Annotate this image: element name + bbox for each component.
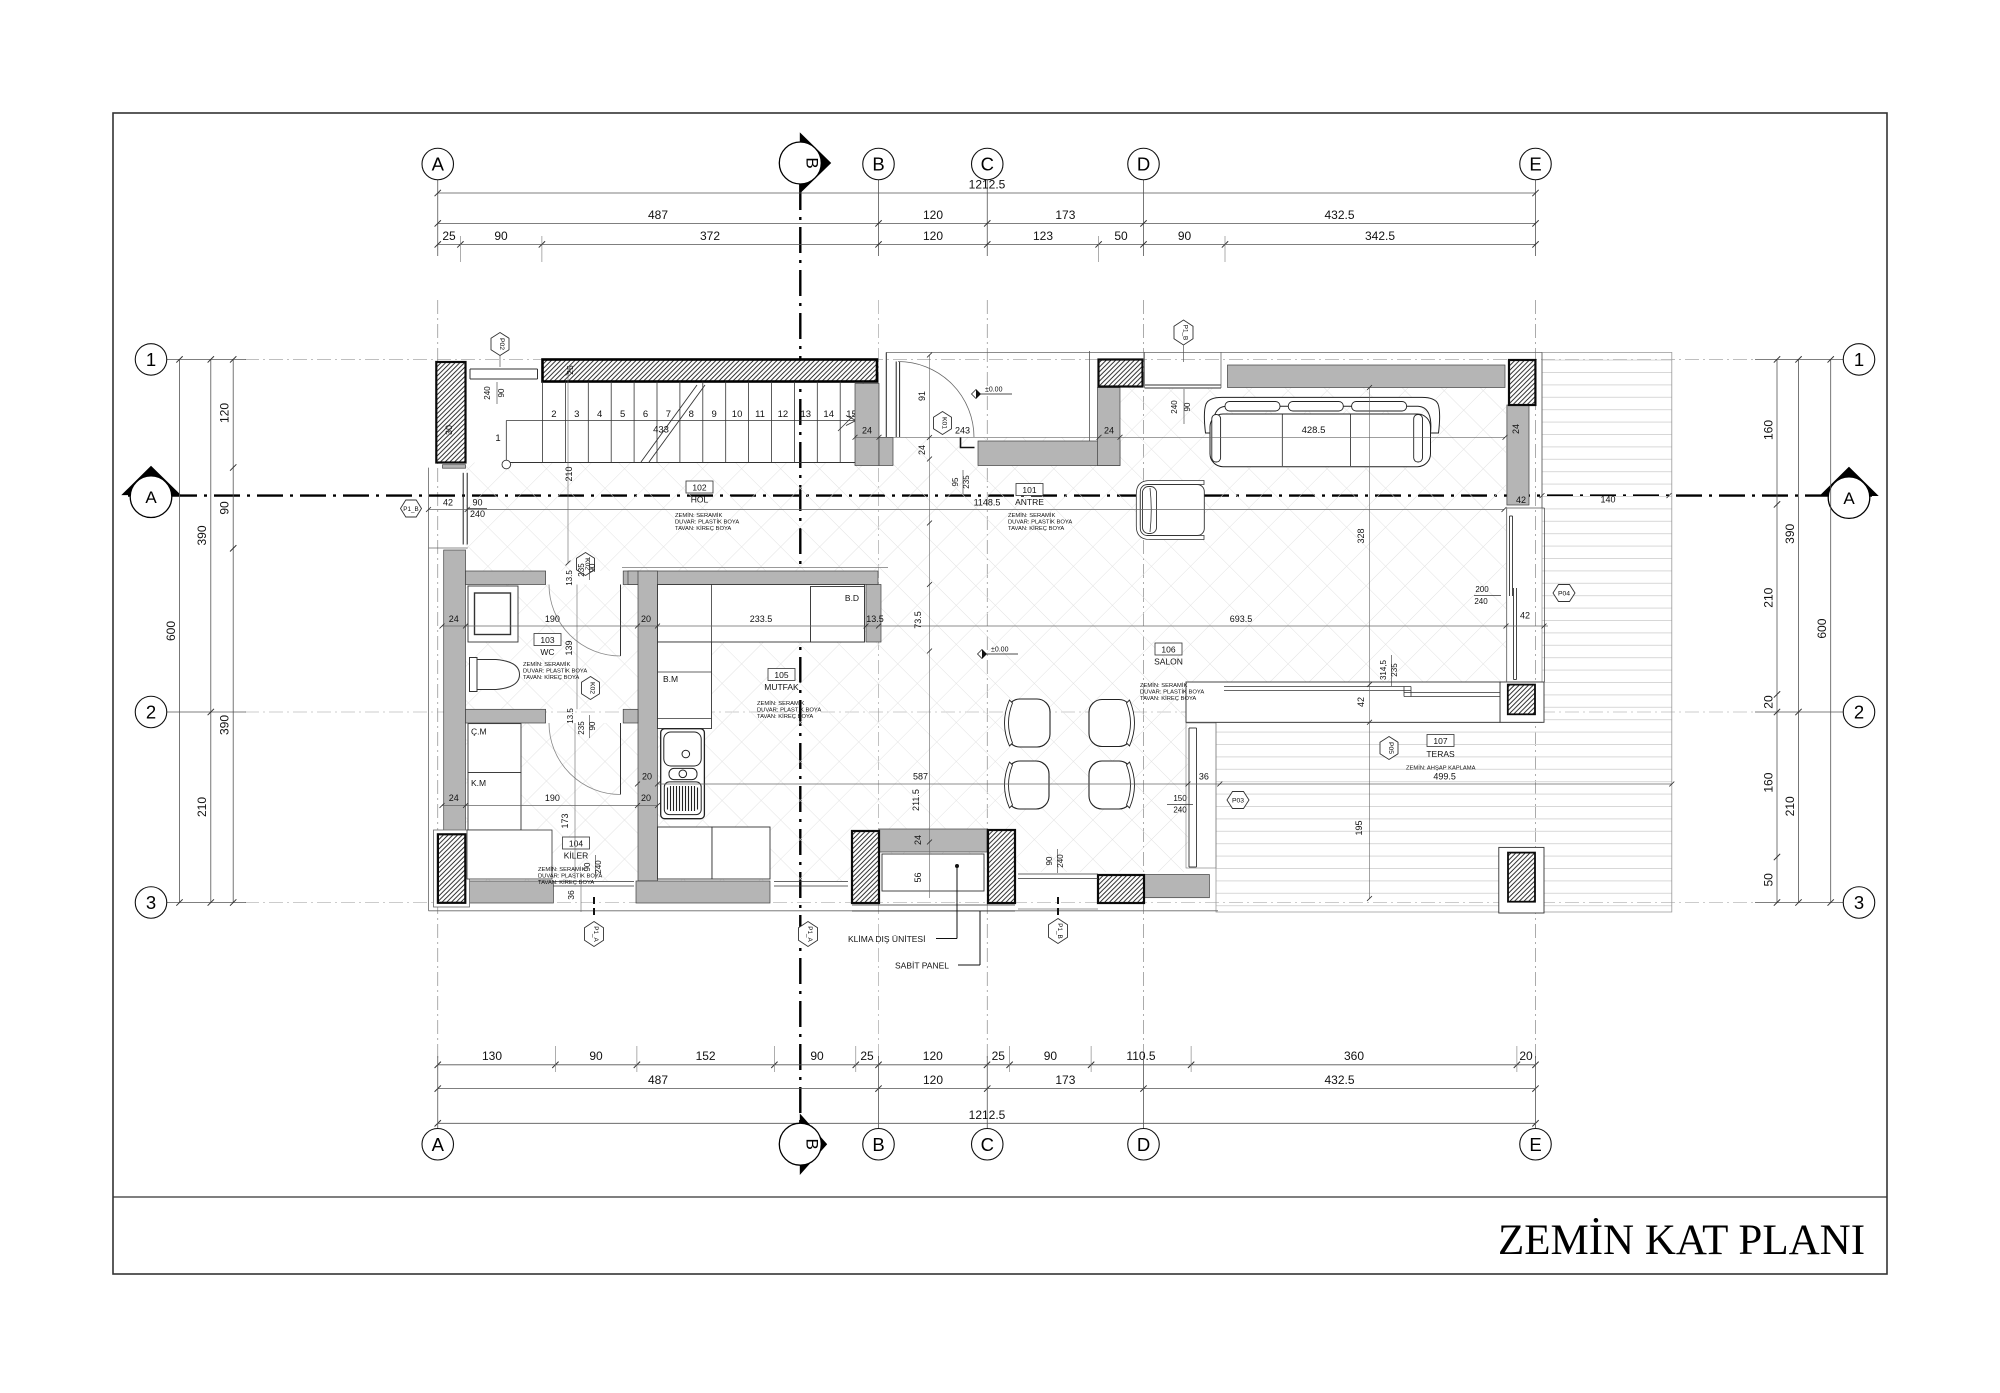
svg-text:30: 30 [444,425,454,435]
svg-text:B: B [802,157,821,168]
svg-text:8: 8 [689,409,694,420]
svg-text:328: 328 [1356,528,1366,543]
svg-text:13.5: 13.5 [866,614,884,624]
svg-text:390: 390 [218,715,232,735]
svg-text:210: 210 [1762,587,1776,607]
svg-text:DUVAR: PLASTİK BOYA: DUVAR: PLASTİK BOYA [757,706,821,713]
svg-text:20: 20 [641,614,651,624]
svg-text:693.5: 693.5 [1230,614,1253,624]
svg-text:240: 240 [1173,806,1187,815]
svg-text:105: 105 [774,670,788,680]
svg-text:342.5: 342.5 [1365,229,1395,243]
svg-text:90: 90 [583,862,592,871]
svg-text:E: E [1529,1134,1541,1155]
svg-text:160: 160 [1762,772,1776,792]
svg-text:13.5: 13.5 [565,570,574,586]
svg-text:1148.5: 1148.5 [974,498,1001,508]
svg-text:123: 123 [1033,229,1053,243]
svg-text:103: 103 [540,635,554,645]
svg-text:240: 240 [1170,400,1179,414]
svg-text:1: 1 [495,433,500,444]
svg-text:SALON: SALON [1154,657,1183,667]
svg-text:200: 200 [1475,585,1489,594]
svg-text:10: 10 [732,409,743,420]
svg-text:P1_B: P1_B [1182,325,1189,340]
svg-text:90: 90 [494,229,508,243]
svg-text:600: 600 [164,621,178,641]
svg-text:36: 36 [566,890,576,900]
svg-text:11: 11 [755,409,765,420]
svg-text:3: 3 [574,409,579,420]
svg-text:20: 20 [642,772,652,782]
svg-text:173: 173 [560,813,570,828]
svg-text:7: 7 [666,409,671,420]
svg-text:HOL: HOL [691,495,709,505]
svg-text:ZEMİN: SERAMİK: ZEMİN: SERAMİK [675,512,722,519]
svg-text:3: 3 [1854,892,1864,913]
svg-text:433: 433 [653,425,669,436]
svg-text:95: 95 [951,477,960,486]
svg-text:A: A [1843,489,1855,508]
svg-text:ZEMİN KAT PLANI: ZEMİN KAT PLANI [1498,1217,1865,1264]
svg-text:90: 90 [1045,856,1054,865]
svg-text:390: 390 [195,525,209,545]
svg-text:90: 90 [1183,402,1192,411]
svg-text:25: 25 [565,365,575,375]
svg-text:P1_B: P1_B [403,506,418,513]
svg-text:B.D: B.D [845,593,859,603]
svg-text:TAVAN: KİREÇ BOYA: TAVAN: KİREÇ BOYA [1140,695,1196,702]
svg-text:P1_A: P1_A [592,926,599,942]
svg-text:25: 25 [860,1049,874,1063]
svg-text:DUVAR: PLASTİK BOYA: DUVAR: PLASTİK BOYA [1008,518,1072,525]
svg-text:91: 91 [917,391,927,401]
svg-text:5: 5 [620,409,625,420]
svg-text:139: 139 [564,640,574,655]
svg-text:235: 235 [577,563,586,577]
svg-text:ANTRE: ANTRE [1015,497,1044,507]
svg-text:±0.00: ±0.00 [985,387,1003,394]
svg-text:C: C [981,1134,994,1155]
svg-text:42: 42 [443,498,453,508]
svg-text:B: B [872,154,884,175]
svg-text:499.5: 499.5 [1433,772,1456,782]
svg-text:P1_B: P1_B [1056,923,1063,938]
svg-text:42: 42 [1520,610,1530,620]
svg-text:173: 173 [1055,208,1075,222]
svg-text:D: D [1137,154,1150,175]
svg-text:24: 24 [913,835,923,845]
svg-text:42: 42 [1516,495,1526,505]
svg-text:90: 90 [589,1049,603,1063]
svg-text:1: 1 [146,349,156,370]
svg-text:ZEMİN: SERAMİK: ZEMİN: SERAMİK [538,866,585,873]
svg-text:210: 210 [1783,796,1797,816]
svg-text:130: 130 [482,1049,502,1063]
svg-text:73.5: 73.5 [913,611,923,629]
svg-text:102: 102 [692,483,706,493]
svg-text:120: 120 [923,1049,943,1063]
svg-text:20: 20 [1519,1049,1533,1063]
svg-text:372: 372 [700,229,720,243]
svg-text:K02: K02 [589,682,596,694]
svg-text:432.5: 432.5 [1324,208,1354,222]
svg-text:SABİT PANEL: SABİT PANEL [895,961,949,971]
svg-text:25: 25 [442,229,456,243]
svg-text:24: 24 [1104,426,1114,436]
svg-text:6: 6 [643,409,648,420]
svg-text:2: 2 [146,702,156,723]
svg-text:TAVAN: KİREÇ BOYA: TAVAN: KİREÇ BOYA [757,713,813,720]
svg-text:MUTFAK: MUTFAK [764,682,799,692]
svg-text:13.5: 13.5 [566,708,575,724]
svg-text:TAVAN: KİREÇ BOYA: TAVAN: KİREÇ BOYA [523,674,579,681]
svg-text:24: 24 [917,445,927,455]
svg-text:487: 487 [648,1073,668,1087]
svg-text:E: E [1529,154,1541,175]
svg-text:152: 152 [696,1049,716,1063]
svg-text:360: 360 [1344,1049,1364,1063]
svg-text:240: 240 [1474,597,1488,606]
svg-text:90: 90 [1044,1049,1058,1063]
svg-text:120: 120 [218,403,232,423]
svg-text:2: 2 [551,409,556,420]
svg-text:20: 20 [641,793,651,803]
svg-text:3: 3 [146,892,156,913]
svg-text:56: 56 [913,872,923,882]
svg-text:KİLER: KİLER [564,851,589,861]
svg-text:13: 13 [801,409,812,420]
svg-text:90: 90 [218,501,232,515]
svg-text:DUVAR: PLASTİK BOYA: DUVAR: PLASTİK BOYA [538,872,602,879]
svg-text:20: 20 [1762,695,1776,709]
svg-text:235: 235 [577,721,586,735]
svg-text:235: 235 [962,475,971,489]
svg-text:B: B [802,1139,821,1150]
svg-text:ZEMİN: SERAMİK: ZEMİN: SERAMİK [1140,682,1187,689]
svg-text:190: 190 [545,614,560,624]
svg-text:36: 36 [1199,772,1209,782]
svg-text:42: 42 [1356,697,1366,707]
svg-text:90: 90 [472,498,482,508]
svg-text:120: 120 [923,208,943,222]
svg-text:DUVAR: PLASTİK BOYA: DUVAR: PLASTİK BOYA [1140,688,1204,695]
svg-text:240: 240 [483,386,492,400]
svg-text:150: 150 [1173,794,1187,803]
svg-text:4: 4 [597,409,602,420]
svg-text:1: 1 [1854,349,1864,370]
svg-text:107: 107 [1433,736,1447,746]
svg-text:110.5: 110.5 [1126,1049,1155,1063]
svg-text:210: 210 [195,797,209,817]
svg-text:24: 24 [449,793,459,803]
svg-text:587: 587 [913,772,928,782]
svg-text:240: 240 [470,509,485,519]
svg-text:90: 90 [810,1049,824,1063]
svg-text:101: 101 [1022,485,1036,495]
svg-text:190: 190 [545,793,560,803]
svg-text:A: A [145,488,157,507]
svg-text:12: 12 [778,409,789,420]
svg-text:90: 90 [497,388,506,397]
svg-text:KLİMA DIŞ ÜNİTESİ: KLİMA DIŞ ÜNİTESİ [848,934,925,944]
svg-text:WC: WC [540,647,554,657]
svg-text:90: 90 [1178,229,1192,243]
svg-text:390: 390 [1783,523,1797,543]
svg-text:160: 160 [1762,420,1776,440]
svg-text:233.5: 233.5 [750,614,773,624]
svg-text:243: 243 [955,426,970,436]
svg-text:428.5: 428.5 [1302,425,1326,436]
svg-text:±0.00: ±0.00 [991,647,1009,654]
svg-text:A: A [432,154,445,175]
svg-text:B: B [872,1134,884,1155]
svg-text:P02: P02 [498,338,505,350]
svg-text:432.5: 432.5 [1324,1073,1354,1087]
svg-text:487: 487 [648,208,668,222]
svg-text:Ç.M: Ç.M [471,727,487,737]
svg-text:ZEMİN: SERAMİK: ZEMİN: SERAMİK [757,700,804,707]
svg-text:P04: P04 [1558,591,1570,598]
svg-text:50: 50 [1114,229,1128,243]
svg-text:9: 9 [712,409,717,420]
svg-text:P1_A: P1_A [806,926,813,942]
svg-text:2: 2 [1854,702,1864,723]
svg-text:K01: K01 [941,417,948,429]
svg-text:50: 50 [1762,873,1776,887]
svg-text:C: C [981,154,994,175]
svg-text:140: 140 [1600,495,1615,505]
svg-text:TAVAN: KİREÇ BOYA: TAVAN: KİREÇ BOYA [538,879,594,886]
svg-text:B.M: B.M [663,674,678,684]
svg-text:DUVAR: PLASTİK BOYA: DUVAR: PLASTİK BOYA [523,667,587,674]
svg-text:D: D [1137,1134,1150,1155]
svg-text:A: A [432,1134,445,1155]
svg-text:TAVAN: KİREÇ BOYA: TAVAN: KİREÇ BOYA [1008,525,1064,532]
svg-text:1212.5: 1212.5 [969,178,1006,192]
svg-text:TAVAN: KİREÇ BOYA: TAVAN: KİREÇ BOYA [675,525,731,532]
svg-text:25: 25 [992,1049,1006,1063]
svg-text:211.5: 211.5 [911,789,921,811]
svg-text:210: 210 [564,466,574,481]
svg-text:ZEMİN: SERAMİK: ZEMİN: SERAMİK [523,661,570,668]
svg-text:P05: P05 [1387,742,1394,754]
svg-text:195: 195 [1354,820,1364,835]
svg-text:106: 106 [1161,645,1175,655]
svg-text:ZEMİN: SERAMİK: ZEMİN: SERAMİK [1008,512,1055,519]
svg-text:ZEMİN: AHŞAP KAPLAMA: ZEMİN: AHŞAP KAPLAMA [1406,765,1476,772]
svg-text:14: 14 [823,409,834,420]
svg-text:DUVAR: PLASTİK BOYA: DUVAR: PLASTİK BOYA [675,518,739,525]
svg-text:24: 24 [1511,424,1521,434]
svg-text:120: 120 [923,1073,943,1087]
svg-text:600: 600 [1815,618,1829,638]
svg-text:120: 120 [923,229,943,243]
svg-text:104: 104 [569,839,583,849]
svg-text:24: 24 [449,614,459,624]
svg-text:314,5: 314,5 [1379,659,1388,680]
svg-text:P03: P03 [1232,798,1244,805]
svg-text:173: 173 [1055,1073,1075,1087]
svg-text:24: 24 [862,426,872,436]
svg-text:K.M: K.M [471,778,486,788]
svg-text:TERAS: TERAS [1426,749,1455,759]
